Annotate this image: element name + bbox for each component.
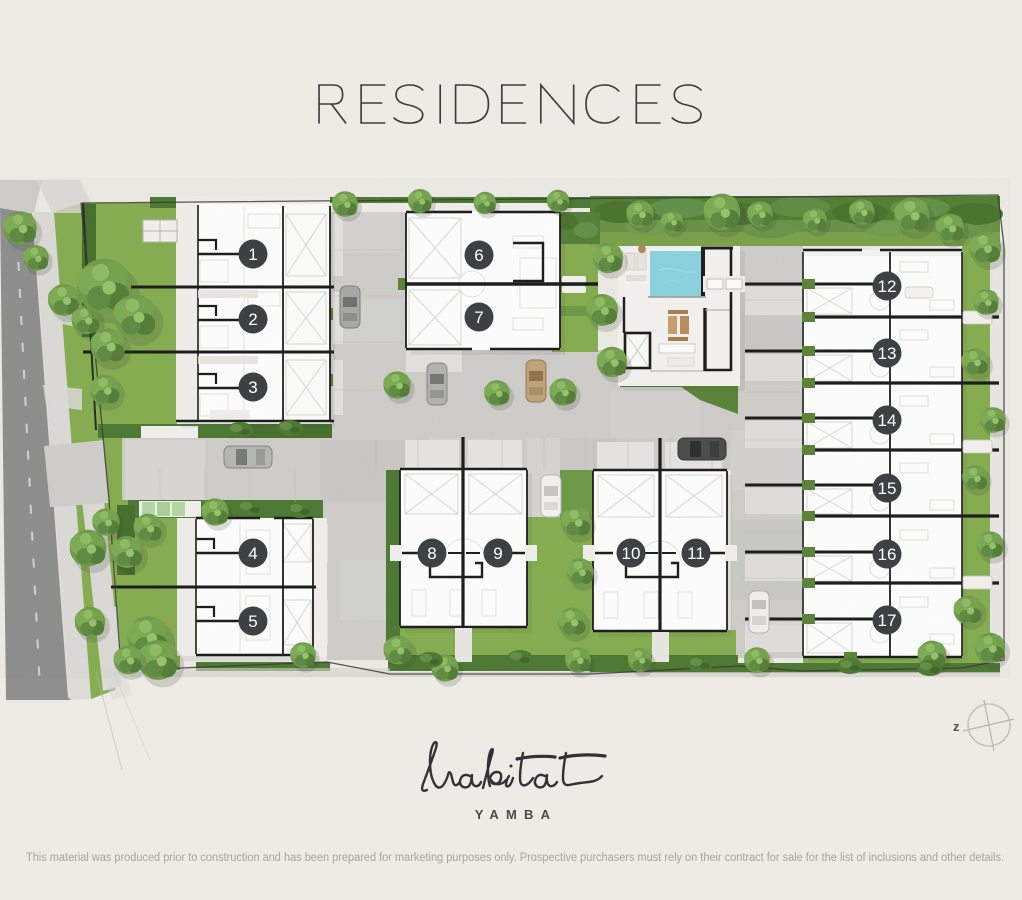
svg-text:11: 11: [687, 544, 705, 563]
svg-text:12: 12: [878, 277, 897, 296]
svg-text:4: 4: [248, 544, 257, 563]
svg-text:9: 9: [493, 544, 502, 563]
svg-text:z: z: [953, 719, 960, 734]
svg-text:10: 10: [622, 544, 641, 563]
svg-text:5: 5: [248, 612, 257, 631]
svg-text:8: 8: [427, 544, 436, 563]
svg-text:16: 16: [878, 545, 897, 564]
svg-text:YAMBA: YAMBA: [475, 807, 557, 822]
svg-text:17: 17: [878, 611, 897, 630]
svg-text:15: 15: [878, 479, 897, 498]
svg-text:This material was produced pri: This material was produced prior to cons…: [26, 852, 1004, 864]
svg-text:2: 2: [248, 310, 257, 329]
svg-text:7: 7: [474, 308, 483, 327]
svg-text:1: 1: [248, 245, 257, 264]
svg-text:14: 14: [878, 411, 897, 430]
svg-text:6: 6: [474, 246, 483, 265]
svg-text:13: 13: [878, 344, 897, 363]
svg-text:3: 3: [248, 378, 257, 397]
